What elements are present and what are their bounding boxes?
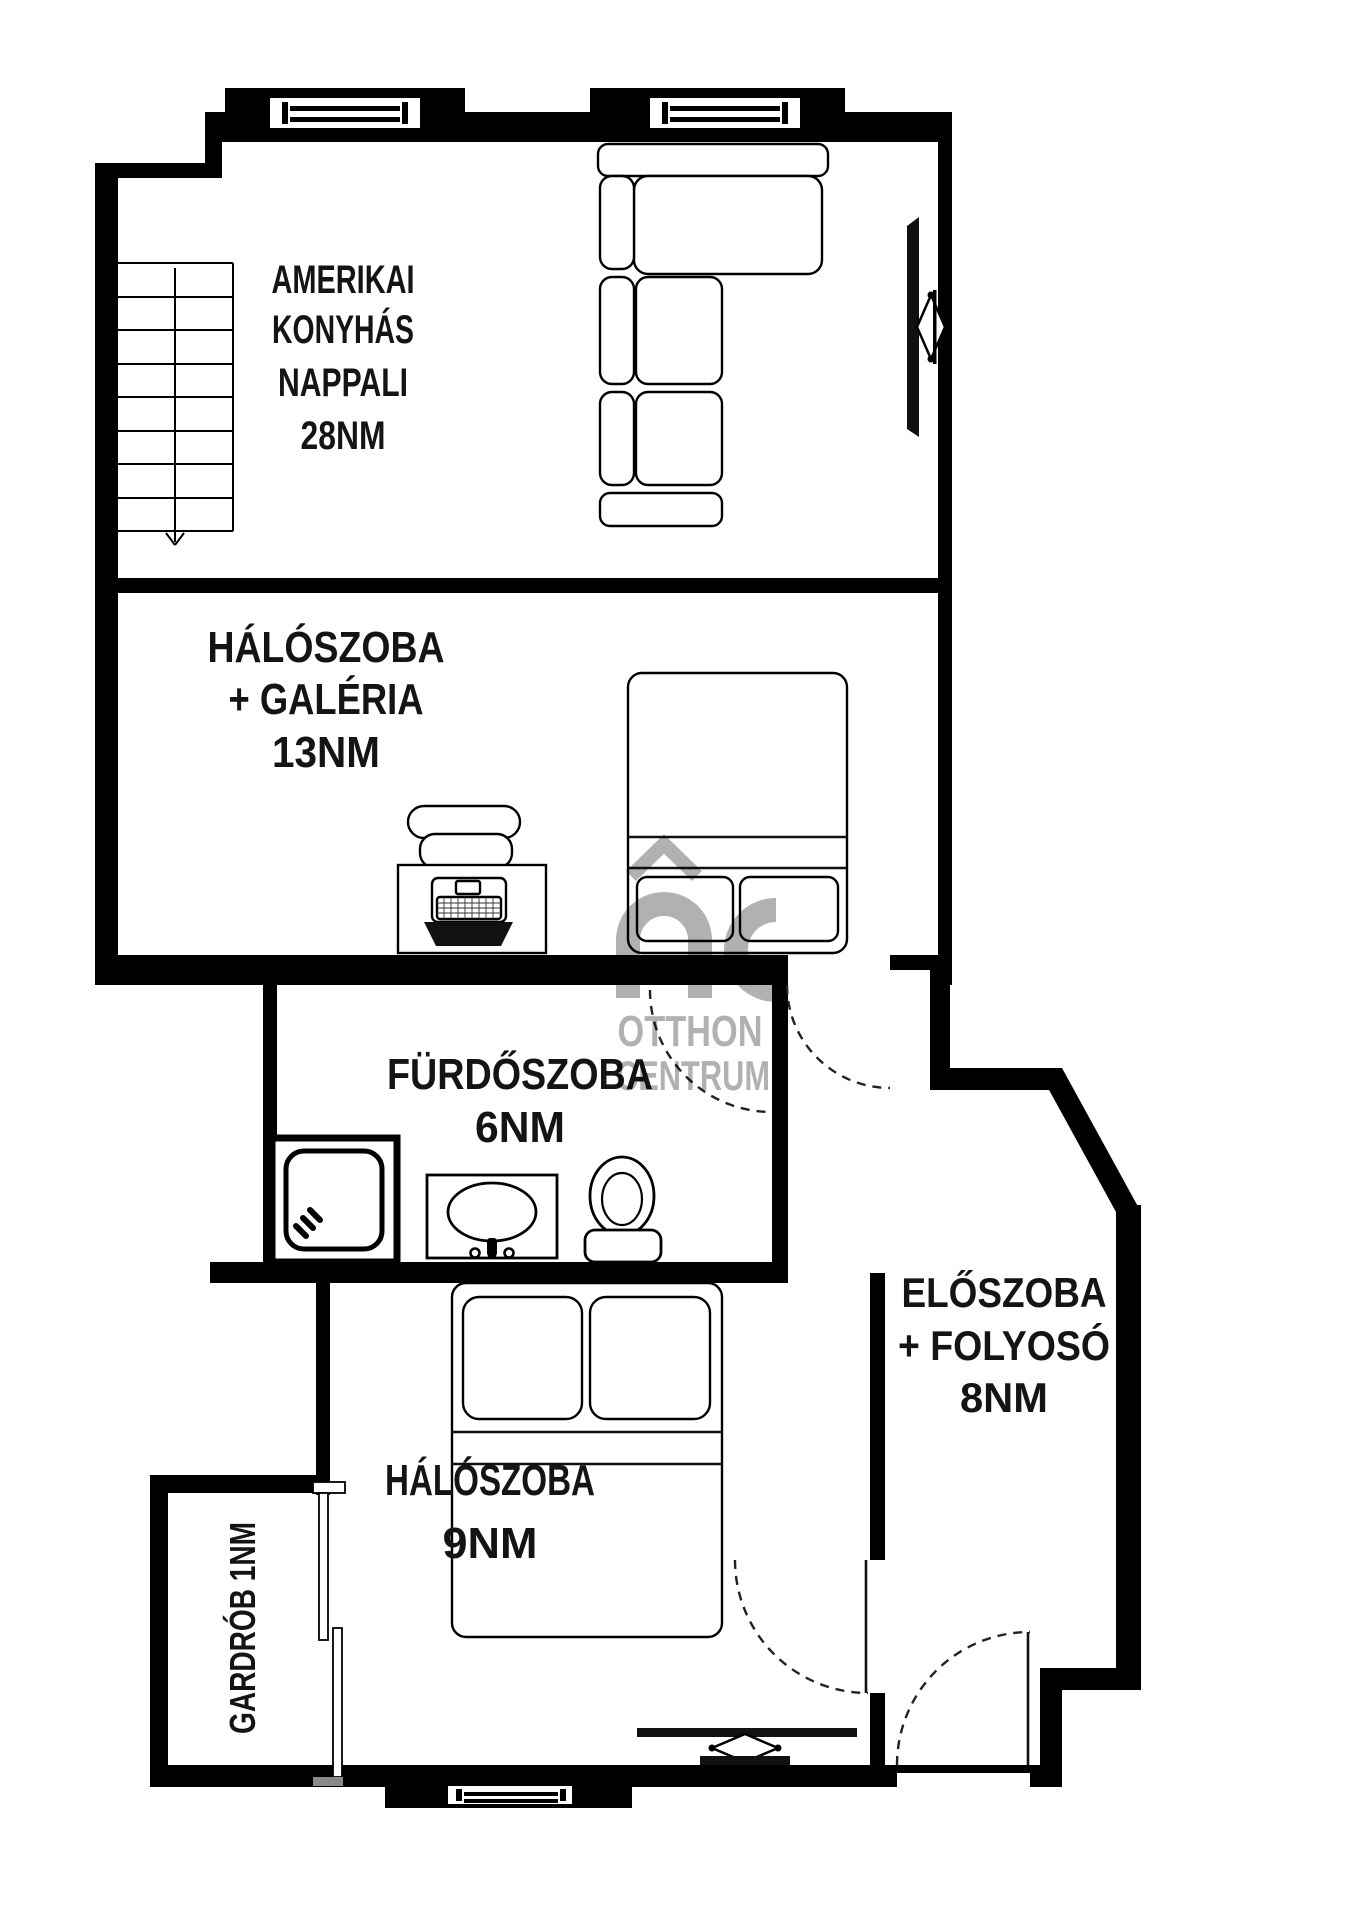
sink-icon [427, 1175, 557, 1259]
living-label-area: 28NM [301, 414, 386, 458]
hall-door-arc [787, 985, 890, 1088]
sofa [598, 144, 828, 526]
toilet-icon [585, 1157, 661, 1262]
bedroom-door-arc [735, 1560, 868, 1693]
living-label-line2: KONYHÁS [272, 307, 414, 352]
bedroom-small-label-line1: HÁLÓSZOBA [385, 1455, 595, 1505]
watermark-text-line2: CENTRUM [616, 1052, 770, 1099]
watermark-text-line1: OTTHON [618, 1007, 763, 1056]
bedroom-gallery-label-line2: + GALÉRIA [229, 674, 424, 724]
staircase [118, 263, 233, 545]
shower-icon [272, 1138, 397, 1262]
bathroom-label-line1: FÜRDŐSZOBA [387, 1049, 653, 1099]
office-chair [408, 806, 520, 868]
entry-door-arc [897, 1632, 1030, 1765]
living-label-line1: AMERIKAI [272, 258, 415, 302]
bedroom-gallery-label-area: 13NM [272, 728, 380, 777]
hallway-label-line2: + FOLYOSÓ [898, 1321, 1110, 1369]
hallway-label-area: 8NM [960, 1374, 1048, 1421]
bedroom-gallery-label-line1: HÁLÓSZOBA [208, 622, 445, 672]
wardrobe-label: GARDRÓB 1NM [221, 1522, 263, 1734]
hallway-label-line1: ELŐSZOBA [902, 1269, 1107, 1316]
floor-plan-page: AMERIKAI KONYHÁS NAPPALI 28NM HÁLÓSZOBA … [0, 0, 1357, 1920]
laptop-icon [424, 878, 513, 946]
bedroom-small-label-area: 9NM [443, 1519, 538, 1568]
window-top-right-icon [650, 98, 800, 128]
sliding-door [313, 1482, 345, 1786]
window-top-left-icon [270, 98, 420, 128]
tv-bedroom-icon [637, 1728, 857, 1765]
stairs-down-arrow-icon [166, 268, 184, 545]
entry-threshold [897, 1765, 1030, 1773]
diagonal-wall [1037, 1068, 1141, 1212]
bathroom-label-area: 6NM [475, 1103, 565, 1152]
living-label-line3: NAPPALI [278, 361, 408, 405]
floor-plan-drawing: AMERIKAI KONYHÁS NAPPALI 28NM HÁLÓSZOBA … [0, 0, 1357, 1920]
window-bottom-icon [448, 1786, 572, 1804]
